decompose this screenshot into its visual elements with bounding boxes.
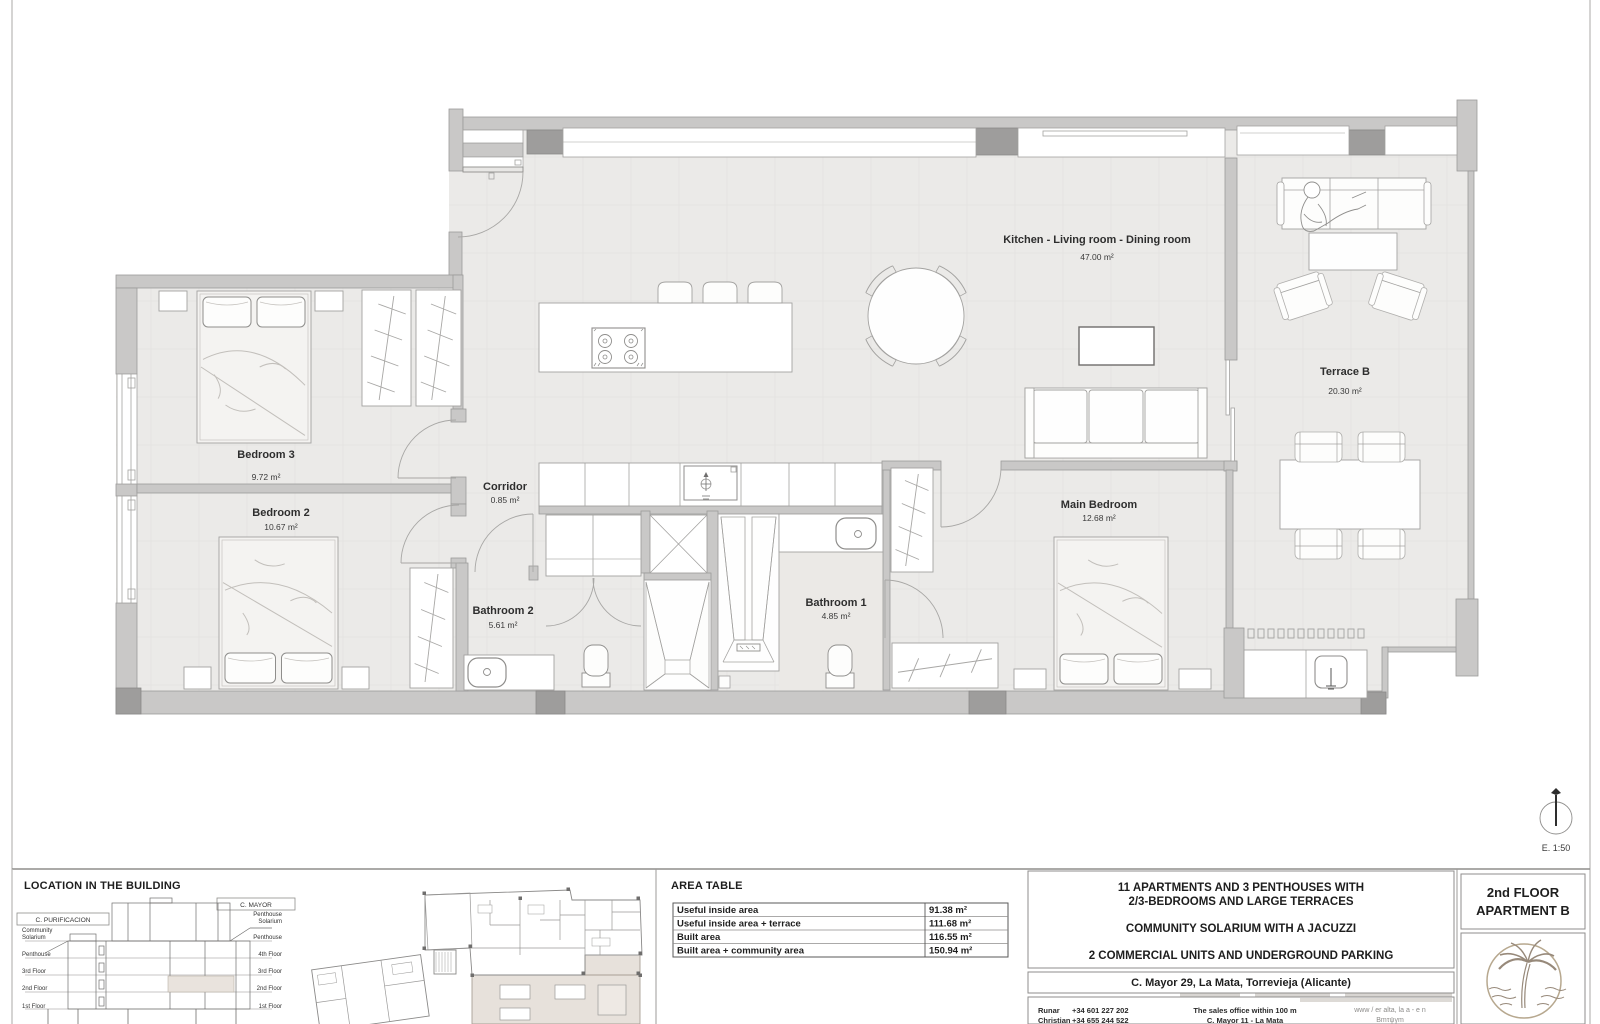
svg-text:Penthouse: Penthouse	[253, 935, 282, 941]
svg-text:12.68 m²: 12.68 m²	[1082, 513, 1116, 523]
svg-text:Built area + community area: Built area + community area	[677, 946, 805, 957]
svg-text:Christian: Christian	[1038, 1016, 1071, 1024]
svg-text:116.55 m²: 116.55 m²	[929, 932, 972, 943]
svg-text:10.67 m²: 10.67 m²	[264, 522, 298, 532]
svg-text:Useful inside area: Useful inside area	[677, 905, 759, 916]
svg-text:5.61 m²: 5.61 m²	[489, 620, 518, 630]
svg-text:C. MAYOR: C. MAYOR	[240, 902, 272, 909]
svg-text:The sales office within 100 m: The sales office within 100 m	[1193, 1006, 1297, 1015]
svg-text:0.85 m²: 0.85 m²	[491, 495, 520, 505]
svg-text:1st Floor: 1st Floor	[259, 1004, 282, 1010]
svg-text:Built area: Built area	[677, 932, 721, 943]
svg-text:150.94 m²: 150.94 m²	[929, 946, 972, 957]
svg-text:Solarium: Solarium	[258, 919, 282, 925]
svg-text:2/3-BEDROOMS AND LARGE TERRACE: 2/3-BEDROOMS AND LARGE TERRACES	[1128, 896, 1353, 908]
svg-text:E. 1:50: E. 1:50	[1542, 843, 1571, 853]
svg-text:+34 601 227 202: +34 601 227 202	[1072, 1006, 1129, 1015]
svg-text:1st Floor: 1st Floor	[22, 1004, 45, 1010]
svg-text:C. Mayor 29, La Mata, Torrevie: C. Mayor 29, La Mata, Torrevieja (Alican…	[1131, 977, 1351, 989]
svg-text:91.38 m²: 91.38 m²	[929, 905, 967, 916]
svg-text:2nd Floor: 2nd Floor	[22, 986, 47, 992]
svg-text:Kitchen - Living room - Dining: Kitchen - Living room - Dining room	[1003, 234, 1191, 246]
svg-text:Bathroom 2: Bathroom 2	[472, 605, 533, 617]
svg-text:11 APARTMENTS AND 3 PENTHOUSES: 11 APARTMENTS AND 3 PENTHOUSES WITH	[1118, 882, 1364, 894]
svg-text:Bmτψγm: Bmτψγm	[1376, 1017, 1404, 1024]
svg-text:20.30 m²: 20.30 m²	[1328, 386, 1362, 396]
svg-text:Bedroom 2: Bedroom 2	[252, 507, 309, 519]
svg-text:AREA TABLE: AREA TABLE	[671, 880, 743, 892]
svg-text:Bathroom 1: Bathroom 1	[805, 597, 866, 609]
svg-text:111.68 m²: 111.68 m²	[929, 919, 971, 930]
svg-text:www / er alta, la a - e n: www / er alta, la a - e n	[1353, 1007, 1426, 1014]
svg-text:Penthouse: Penthouse	[253, 912, 282, 918]
svg-text:Runar: Runar	[1038, 1006, 1060, 1015]
svg-text:COMMUNITY SOLARIUM WITH A JACU: COMMUNITY SOLARIUM WITH A JACUZZI	[1126, 923, 1356, 935]
svg-text:4th Floor: 4th Floor	[258, 952, 282, 958]
svg-text:+34 655 244 522: +34 655 244 522	[1072, 1016, 1129, 1024]
svg-text:LOCATION IN THE BUILDING: LOCATION IN THE BUILDING	[24, 880, 181, 892]
svg-text:Corridor: Corridor	[483, 481, 528, 493]
svg-text:C. Mayor 11 - La Mata: C. Mayor 11 - La Mata	[1207, 1016, 1284, 1024]
svg-text:Solarium: Solarium	[22, 935, 46, 941]
svg-text:3rd Floor: 3rd Floor	[22, 969, 46, 975]
svg-text:Penthouse: Penthouse	[22, 952, 51, 958]
svg-text:Community: Community	[22, 928, 52, 934]
svg-text:Main Bedroom: Main Bedroom	[1061, 499, 1138, 511]
svg-text:2 COMMERCIAL UNITS AND UNDERGR: 2 COMMERCIAL UNITS AND UNDERGROUND PARKI…	[1089, 950, 1394, 962]
svg-text:9.72 m²: 9.72 m²	[252, 472, 281, 482]
svg-text:4.85 m²: 4.85 m²	[822, 611, 851, 621]
svg-text:3rd Floor: 3rd Floor	[258, 969, 282, 975]
svg-text:Terrace B: Terrace B	[1320, 366, 1370, 378]
svg-text:APARTMENT B: APARTMENT B	[1476, 903, 1570, 918]
svg-text:47.00 m²: 47.00 m²	[1080, 252, 1114, 262]
svg-text:Bedroom 3: Bedroom 3	[237, 449, 294, 461]
svg-text:2nd Floor: 2nd Floor	[257, 986, 282, 992]
svg-text:Useful inside area + terrace: Useful inside area + terrace	[677, 919, 801, 930]
svg-text:2nd FLOOR: 2nd FLOOR	[1487, 885, 1560, 900]
svg-text:C. PURIFICACION: C. PURIFICACION	[36, 917, 91, 924]
